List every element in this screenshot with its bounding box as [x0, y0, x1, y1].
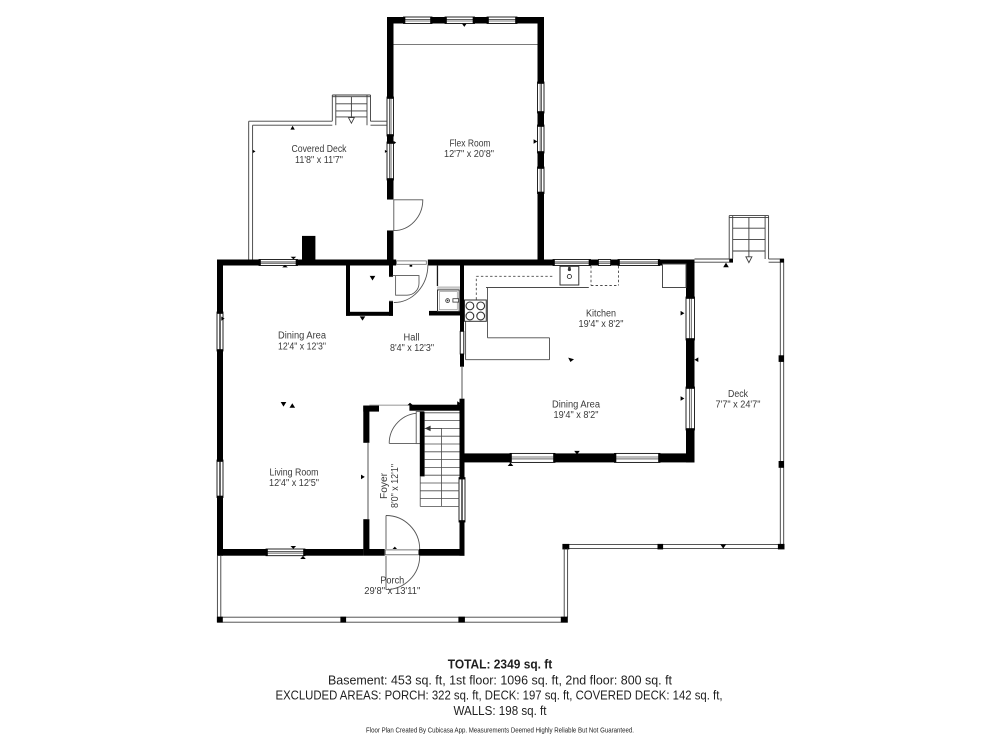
- svg-text:12'4" x 12'3": 12'4" x 12'3": [278, 342, 326, 353]
- svg-text:Hall: Hall: [404, 333, 420, 344]
- svg-text:Porch: Porch: [380, 576, 404, 587]
- svg-text:12'7" x 20'8": 12'7" x 20'8": [444, 149, 494, 160]
- svg-text:Dining Area: Dining Area: [552, 400, 600, 411]
- svg-text:11'8" x 11'7": 11'8" x 11'7": [295, 155, 343, 166]
- svg-text:Kitchen: Kitchen: [586, 309, 616, 320]
- svg-text:EXCLUDED AREAS: PORCH: 322 sq.: EXCLUDED AREAS: PORCH: 322 sq. ft, DECK:…: [276, 689, 723, 703]
- svg-text:Basement: 453 sq. ft, 1st floo: Basement: 453 sq. ft, 1st floor: 1096 sq…: [328, 673, 672, 687]
- svg-text:8'4" x 12'3": 8'4" x 12'3": [390, 343, 434, 354]
- svg-text:TOTAL: 2349 sq. ft: TOTAL: 2349 sq. ft: [448, 657, 553, 672]
- svg-text:Flex Room: Flex Room: [450, 139, 491, 150]
- svg-text:8'0" x 12'1": 8'0" x 12'1": [390, 464, 401, 508]
- svg-text:Foyer: Foyer: [379, 472, 390, 499]
- svg-text:Floor Plan Created By Cubicasa: Floor Plan Created By Cubicasa App. Meas…: [366, 725, 634, 734]
- svg-text:WALLS: 198 sq. ft: WALLS: 198 sq. ft: [454, 704, 547, 718]
- svg-text:29'8" x 13'11": 29'8" x 13'11": [364, 586, 420, 597]
- svg-text:12'4" x 12'5": 12'4" x 12'5": [269, 478, 319, 489]
- svg-text:Deck: Deck: [728, 389, 749, 400]
- svg-text:19'4" x 8'2": 19'4" x 8'2": [554, 410, 599, 421]
- svg-text:Living Room: Living Room: [270, 468, 319, 479]
- svg-text:19'4" x 8'2": 19'4" x 8'2": [579, 319, 624, 330]
- svg-text:7'7" x 24'7": 7'7" x 24'7": [716, 400, 761, 411]
- svg-text:Dining Area: Dining Area: [278, 331, 326, 342]
- svg-text:Covered Deck: Covered Deck: [292, 144, 348, 155]
